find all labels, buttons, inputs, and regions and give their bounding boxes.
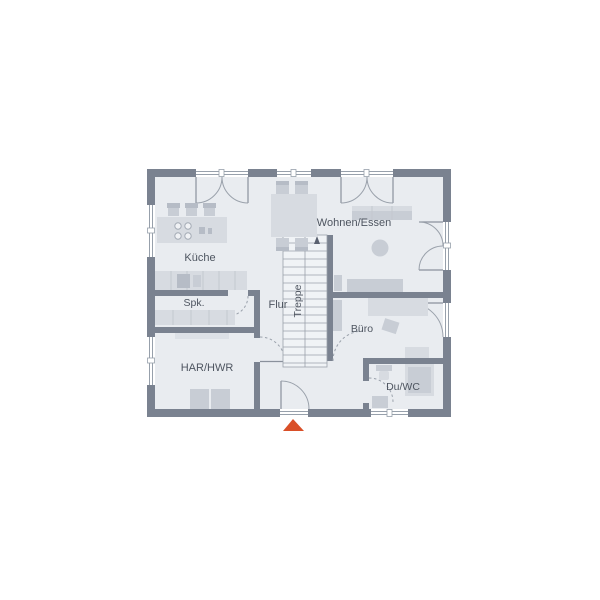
kitchen-island — [157, 217, 227, 243]
desk — [368, 298, 428, 316]
room-label-spk: Spk. — [183, 297, 204, 309]
room-label-du-wc: Du/WC — [386, 381, 420, 393]
side-table — [372, 240, 389, 257]
washbasin — [372, 396, 388, 408]
dishwasher — [193, 275, 201, 287]
office-shelf — [333, 300, 342, 331]
dining-table — [271, 194, 317, 237]
window-top — [277, 169, 311, 177]
room-label-buero: Büro — [351, 323, 373, 335]
room-label-flur: Flur — [269, 299, 288, 311]
staircase — [283, 235, 327, 367]
kitchen-sink — [199, 227, 205, 234]
har-shelf — [175, 333, 229, 339]
washer — [190, 389, 209, 409]
dryer — [211, 389, 230, 409]
kitchen-sink-drainer — [208, 228, 212, 234]
entrance-arrow-icon — [283, 419, 304, 431]
tv-board — [334, 275, 342, 291]
floor-plan: Küche Spk. Flur Treppe Wohnen/Essen Büro… — [0, 0, 600, 600]
bar-stools — [167, 203, 216, 216]
pantry-shelf — [155, 310, 235, 325]
window-left-kitchen — [147, 205, 155, 257]
room-label-kueche: Küche — [184, 252, 215, 264]
oven — [177, 274, 190, 288]
kitchen-counter — [155, 271, 247, 290]
room-label-treppe: Treppe — [292, 284, 304, 317]
room-label-har-hwr: HAR/HWR — [181, 362, 234, 374]
window-left-har — [147, 337, 155, 385]
office-lowboard — [405, 347, 429, 358]
sofa — [347, 279, 403, 292]
window-bottom-duwc — [371, 409, 408, 417]
floor-plan-page: Küche Spk. Flur Treppe Wohnen/Essen Büro… — [0, 0, 600, 600]
room-label-wohnen-essen: Wohnen/Essen — [317, 217, 391, 229]
